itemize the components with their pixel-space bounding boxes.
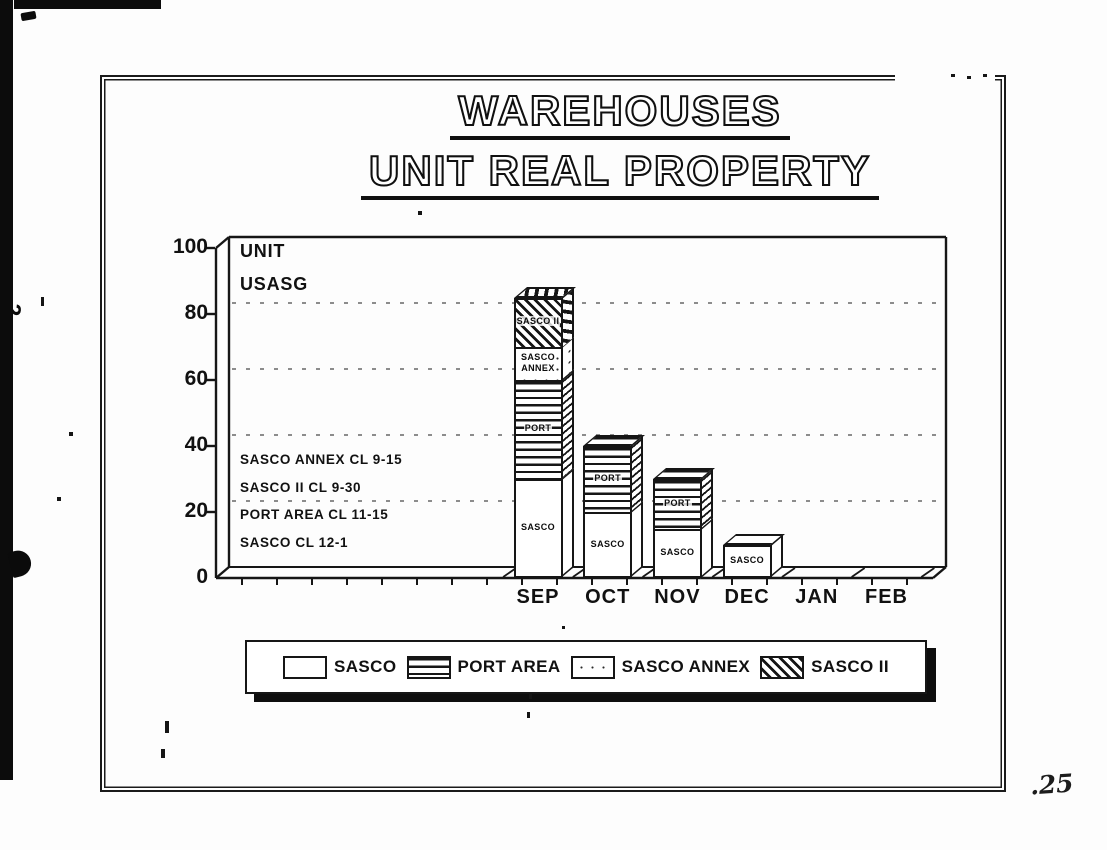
legend-item-sasco-ii: SASCO II: [760, 656, 889, 679]
scan-speck: [527, 712, 530, 718]
scan-speck: [165, 721, 169, 733]
scan-speck: [967, 76, 971, 79]
legend-label: PORT AREA: [458, 657, 561, 677]
title-line-1: WAREHOUSES: [450, 90, 789, 140]
legend-item-port-area: PORT AREA: [407, 656, 561, 679]
scan-speck: [951, 74, 955, 77]
scan-speck: [57, 497, 61, 501]
scan-artifact-left-edge-bar: [0, 0, 13, 780]
scan-speck: [161, 749, 165, 758]
chart-title: WAREHOUSES UNIT REAL PROPERTY: [210, 90, 1030, 210]
legend-swatch-plain: [283, 656, 327, 679]
title-line-2: UNIT REAL PROPERTY: [361, 150, 879, 200]
legend-swatch-diag: [760, 656, 804, 679]
scan-gap-top-border: [895, 71, 995, 82]
scan-speck: [529, 693, 532, 699]
scan-speck: [69, 432, 73, 436]
legend-label: SASCO: [334, 657, 396, 677]
legend-item-sasco-annex: SASCO ANNEX: [571, 656, 750, 679]
page-number: .25: [1029, 769, 1074, 801]
legend-label: SASCO II: [811, 657, 889, 677]
scan-artifact-top-edge-bar: [14, 0, 161, 9]
legend-item-sasco: SASCO: [283, 656, 396, 679]
scan-speck: [41, 297, 44, 306]
scanned-page: WAREHOUSES UNIT REAL PROPERTY SASCOPORTS…: [0, 0, 1107, 850]
scan-margin-mark: 2: [0, 302, 26, 317]
scan-speck: [418, 211, 422, 215]
chart-legend: SASCOPORT AREASASCO ANNEXSASCO II: [245, 640, 927, 694]
scan-speck: [983, 74, 987, 77]
legend-swatch-dots: [571, 656, 615, 679]
legend-swatch-hlines: [407, 656, 451, 679]
legend-label: SASCO ANNEX: [622, 657, 750, 677]
scan-artifact-dash: [20, 11, 36, 21]
scan-speck: [562, 626, 565, 629]
